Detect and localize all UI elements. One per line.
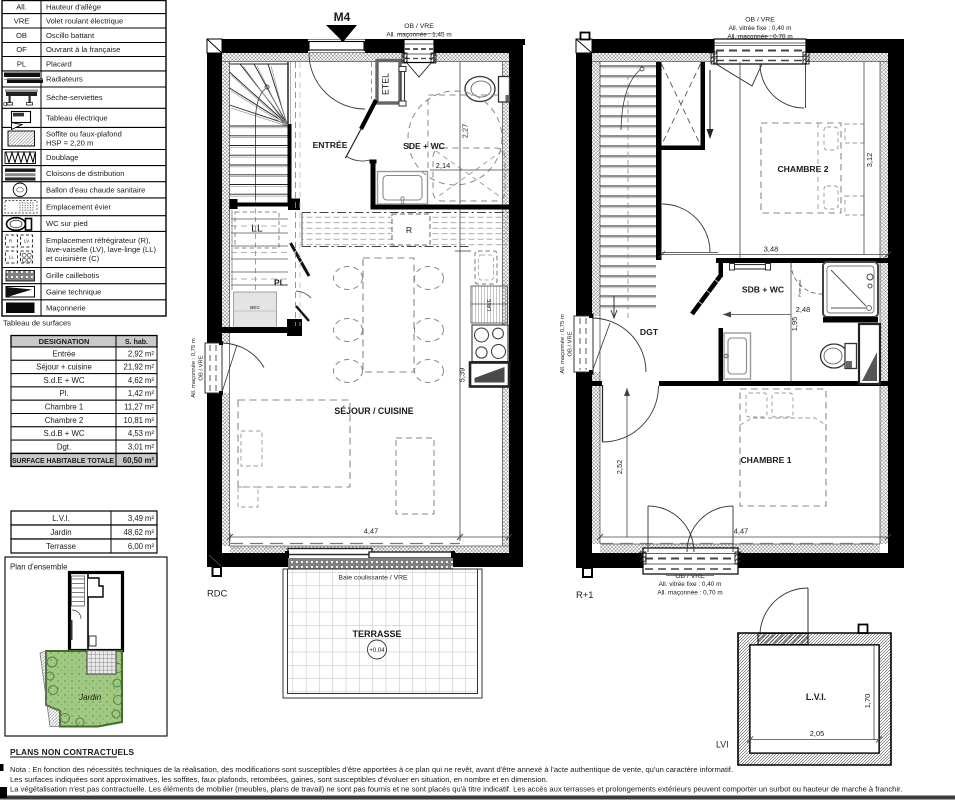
svg-text:TERRASSE: TERRASSE	[352, 629, 401, 639]
svg-text:Les surfaces indiquées sont ap: Les surfaces indiquées sont approximativ…	[10, 775, 548, 784]
svg-text:48,62: 48,62	[123, 528, 143, 537]
svg-text:lave-vaiselle (LV), lave-linge: lave-vaiselle (LV), lave-linge (LL)	[46, 245, 156, 254]
svg-text:RDC: RDC	[207, 588, 228, 599]
svg-text:CHAMBRE 1: CHAMBRE 1	[740, 455, 791, 465]
svg-text:1,70: 1,70	[863, 694, 872, 708]
svg-text:Pl.: Pl.	[59, 389, 68, 398]
svg-text:L.V.I.: L.V.I.	[806, 692, 826, 702]
svg-text:et cuisinière (C): et cuisinière (C)	[46, 254, 100, 263]
svg-text:Chambre 1: Chambre 1	[45, 403, 84, 412]
svg-text:4,47: 4,47	[364, 527, 378, 536]
svg-text:Doublage: Doublage	[46, 153, 79, 162]
svg-text:m²: m²	[145, 363, 154, 372]
svg-text:Dgt.: Dgt.	[57, 443, 71, 452]
svg-text:Emplacement réfrégirateur (R),: Emplacement réfrégirateur (R),	[46, 236, 151, 245]
svg-text:m²: m²	[145, 429, 154, 438]
svg-text:DESIGNATION: DESIGNATION	[39, 337, 90, 346]
svg-text:6,00: 6,00	[128, 542, 144, 551]
svg-text:Chambre 2: Chambre 2	[45, 416, 84, 425]
svg-text:m²: m²	[145, 542, 154, 551]
svg-text:m²: m²	[145, 389, 154, 398]
svg-text:Ouvrant à la française: Ouvrant à la française	[46, 45, 120, 54]
svg-text:m²: m²	[145, 349, 154, 358]
svg-text:OB: OB	[16, 31, 27, 40]
svg-text:CHAMBRE 2: CHAMBRE 2	[777, 164, 828, 174]
svg-text:SURFACE HABITABLE TOTALE: SURFACE HABITABLE TOTALE	[12, 456, 114, 465]
svg-text:ENTRÉE: ENTRÉE	[313, 140, 348, 150]
svg-text:Radiateurs: Radiateurs	[46, 75, 83, 84]
svg-text:10,81: 10,81	[123, 416, 143, 425]
svg-text:SDB + WC: SDB + WC	[742, 285, 784, 295]
svg-text:PLANS NON CONTRACTUELS: PLANS NON CONTRACTUELS	[10, 747, 135, 757]
svg-text:LVI: LVI	[716, 740, 729, 750]
svg-text:S. hab.: S. hab.	[125, 339, 148, 346]
svg-text:OB / VRE: OB / VRE	[404, 23, 434, 30]
svg-text:Oscillo battant: Oscillo battant	[46, 31, 95, 40]
svg-text:Hauteur d'allège: Hauteur d'allège	[46, 3, 101, 12]
svg-text:LL: LL	[9, 255, 15, 260]
svg-text:Séjour + cuisine: Séjour + cuisine	[36, 363, 92, 372]
svg-text:1,95: 1,95	[790, 317, 799, 331]
svg-text:DGT: DGT	[640, 327, 659, 337]
svg-text:OF: OF	[16, 45, 27, 54]
svg-text:L.V.I.: L.V.I.	[52, 514, 70, 523]
svg-text:+0,04: +0,04	[369, 648, 385, 654]
svg-text:Ballon d'eau chaude sanitaire: Ballon d'eau chaude sanitaire	[46, 185, 145, 194]
svg-text:4,62: 4,62	[128, 376, 143, 385]
svg-text:2,48: 2,48	[796, 305, 810, 314]
svg-text:m²: m²	[145, 514, 154, 523]
svg-text:Volet roulant électrique: Volet roulant électrique	[46, 16, 123, 25]
svg-text:2,52: 2,52	[615, 460, 624, 474]
svg-text:m²: m²	[145, 416, 154, 425]
svg-text:Entrée: Entrée	[53, 349, 76, 358]
svg-text:M4: M4	[334, 10, 351, 24]
svg-text:Placard: Placard	[46, 59, 72, 68]
svg-text:All. vitrée fixe : 0,40 m: All. vitrée fixe : 0,40 m	[659, 581, 722, 588]
svg-text:LAVE: LAVE	[487, 298, 493, 311]
svg-text:Gaine technique: Gaine technique	[46, 287, 101, 296]
svg-text:La végétalisation n'est pas co: La végétalisation n'est pas contractuell…	[10, 785, 902, 794]
svg-text:m²: m²	[145, 376, 154, 385]
svg-text:3,01: 3,01	[128, 443, 143, 452]
svg-text:Maçonnerie: Maçonnerie	[46, 304, 86, 313]
svg-text:m²: m²	[145, 403, 154, 412]
svg-text:Sèche-serviettes: Sèche-serviettes	[46, 93, 103, 102]
svg-text:Grille caillebotis: Grille caillebotis	[46, 271, 99, 280]
svg-text:S.d.E + WC: S.d.E + WC	[44, 376, 85, 385]
svg-text:Cloisons de distribution: Cloisons de distribution	[46, 169, 125, 178]
svg-text:2,05: 2,05	[810, 729, 824, 738]
svg-text:LV: LV	[24, 239, 29, 244]
svg-text:OB / VRE: OB / VRE	[675, 573, 705, 580]
svg-text:4,53: 4,53	[128, 429, 143, 438]
svg-text:All. maçonnée : 0,75 m: All. maçonnée : 0,75 m	[191, 338, 197, 397]
svg-text:60,50 m²: 60,50 m²	[123, 456, 155, 465]
svg-text:2,14: 2,14	[436, 161, 450, 170]
svg-text:WC sur pied: WC sur pied	[46, 219, 88, 228]
svg-text:Emplacement évier: Emplacement évier	[46, 202, 111, 211]
svg-text:Terrasse: Terrasse	[46, 542, 76, 551]
svg-text:All. vitrée fixe : 0,40 m: All. vitrée fixe : 0,40 m	[729, 25, 792, 32]
svg-text:OB / VRE: OB / VRE	[745, 17, 775, 24]
svg-text:OB / VRE: OB / VRE	[568, 331, 574, 356]
svg-text:Jardin: Jardin	[50, 528, 71, 537]
svg-text:All.: All.	[16, 3, 27, 12]
svg-text:21,92: 21,92	[123, 363, 143, 372]
svg-text:5,39: 5,39	[458, 368, 467, 382]
svg-text:2,92: 2,92	[128, 349, 143, 358]
svg-text:Soffite ou faux-plafond: Soffite ou faux-plafond	[46, 129, 122, 138]
svg-text:3,12: 3,12	[865, 153, 874, 167]
svg-text:11,27: 11,27	[124, 403, 143, 412]
svg-text:R+1: R+1	[576, 589, 593, 600]
svg-text:PL.: PL.	[274, 278, 287, 288]
svg-text:Tableau électrique: Tableau électrique	[46, 113, 108, 122]
svg-text:SÉJOUR / CUISINE: SÉJOUR / CUISINE	[334, 406, 413, 416]
svg-text:All. maçonnée : 1,45 m: All. maçonnée : 1,45 m	[386, 32, 451, 39]
svg-text:R: R	[406, 225, 412, 235]
svg-text:S.d.B + WC: S.d.B + WC	[44, 429, 85, 438]
svg-text:Jardin: Jardin	[78, 693, 102, 702]
svg-text:2,27: 2,27	[461, 124, 470, 138]
svg-text:SDE + WC: SDE + WC	[403, 141, 445, 151]
svg-text:PL: PL	[17, 59, 26, 68]
svg-text:Tableau de surfaces: Tableau de surfaces	[3, 319, 71, 328]
svg-text:BEC: BEC	[250, 305, 260, 311]
svg-text:Plan d'ensemble: Plan d'ensemble	[10, 563, 67, 572]
svg-text:Nota : En fonction des nécessi: Nota : En fonction des nécessités techni…	[10, 765, 733, 774]
svg-text:HSP = 2,20 m: HSP = 2,20 m	[46, 139, 93, 148]
svg-text:Porte coul.: Porte coul.	[798, 279, 802, 296]
svg-text:3,48: 3,48	[764, 245, 778, 254]
svg-text:ETEL: ETEL	[381, 73, 391, 95]
svg-text:All. maçonnée : 0,70 m: All. maçonnée : 0,70 m	[657, 590, 722, 597]
svg-text:3,49: 3,49	[128, 514, 143, 523]
svg-text:4,47: 4,47	[734, 527, 748, 536]
svg-text:All. maçonnée : 0,75 m: All. maçonnée : 0,75 m	[560, 314, 566, 373]
svg-text:1,42: 1,42	[128, 389, 143, 398]
svg-text:OB / VRE: OB / VRE	[199, 355, 205, 380]
svg-text:m²: m²	[145, 443, 154, 452]
svg-text:VRE: VRE	[14, 16, 30, 25]
svg-text:m²: m²	[145, 528, 154, 537]
